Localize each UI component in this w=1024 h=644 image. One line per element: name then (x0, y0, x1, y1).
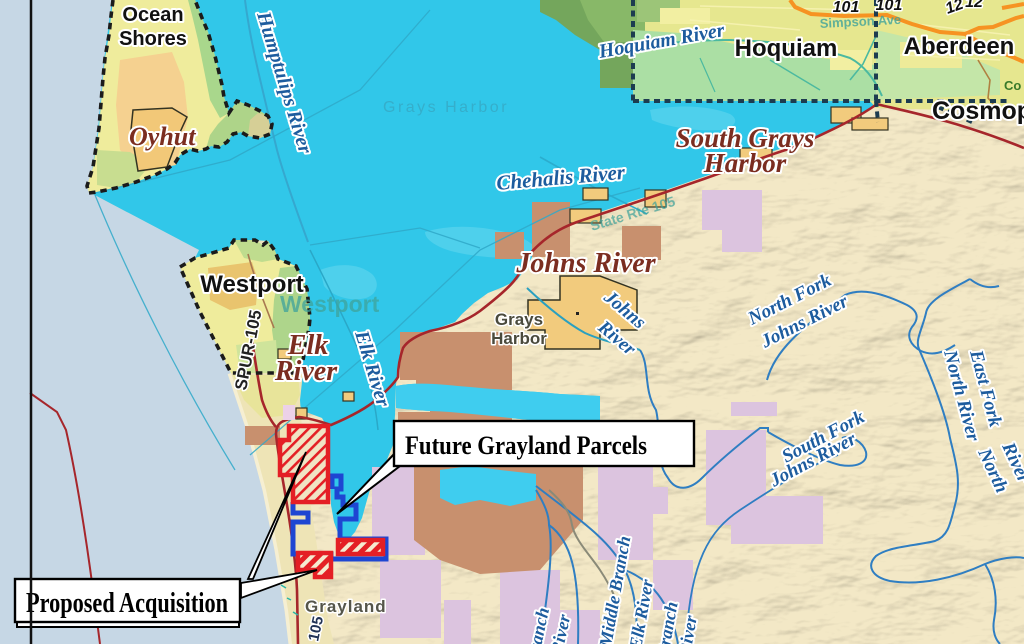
svg-text:Grays: Grays (495, 310, 543, 329)
svg-text:Grayland: Grayland (305, 597, 387, 616)
svg-text:Cosmopo: Cosmopo (932, 97, 1024, 125)
svg-text:River: River (274, 356, 338, 387)
svg-text:Westport: Westport (280, 291, 380, 317)
svg-text:Aberdeen: Aberdeen (904, 33, 1015, 60)
svg-text:Shores: Shores (119, 28, 187, 50)
svg-text:Johns River: Johns River (515, 248, 656, 279)
svg-text:Future Grayland Parcels: Future Grayland Parcels (405, 431, 647, 460)
svg-text:Ocean: Ocean (122, 4, 183, 26)
svg-text:101: 101 (833, 0, 860, 16)
svg-text:Grays Harbor: Grays Harbor (383, 99, 509, 116)
svg-text:12: 12 (965, 0, 983, 11)
svg-text:Oyhut: Oyhut (129, 122, 196, 151)
svg-text:Hoquiam: Hoquiam (735, 35, 838, 62)
svg-text:Harbor: Harbor (703, 148, 787, 178)
svg-text:101: 101 (876, 0, 903, 14)
svg-text:Harbor: Harbor (491, 329, 547, 348)
svg-text:Co: Co (1004, 78, 1021, 93)
svg-text:Proposed Acquisition: Proposed Acquisition (26, 588, 228, 619)
